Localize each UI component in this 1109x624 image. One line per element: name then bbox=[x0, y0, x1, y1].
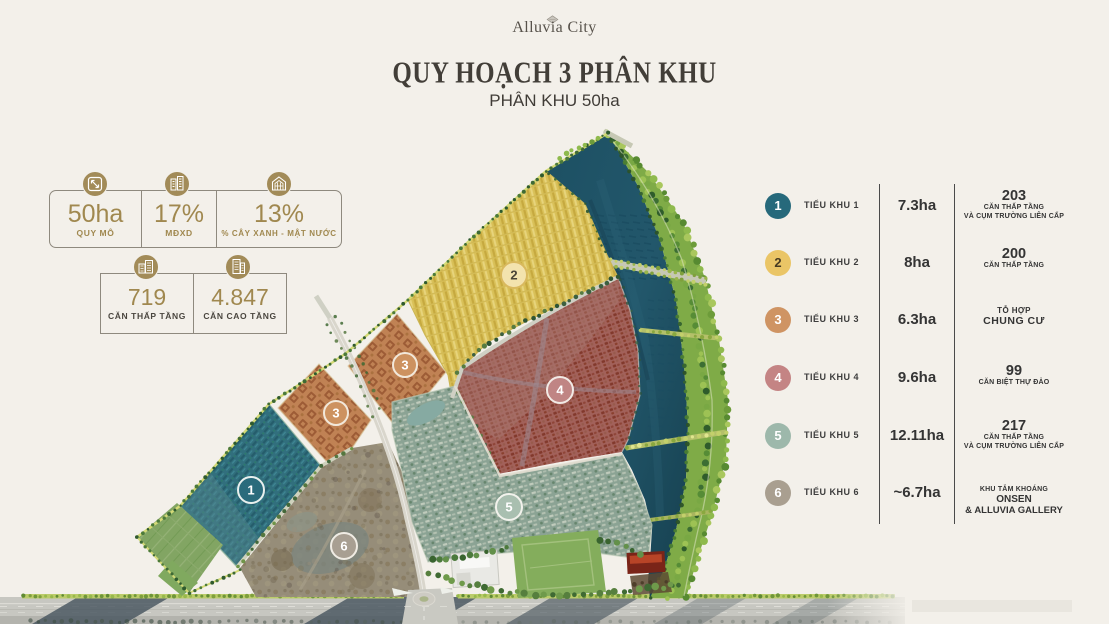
svg-text:3: 3 bbox=[401, 358, 408, 373]
svg-text:2: 2 bbox=[510, 268, 517, 283]
svg-text:6: 6 bbox=[340, 539, 347, 554]
svg-text:1: 1 bbox=[247, 483, 254, 498]
svg-text:4: 4 bbox=[556, 383, 564, 398]
svg-text:3: 3 bbox=[332, 406, 339, 421]
svg-text:5: 5 bbox=[505, 500, 512, 515]
